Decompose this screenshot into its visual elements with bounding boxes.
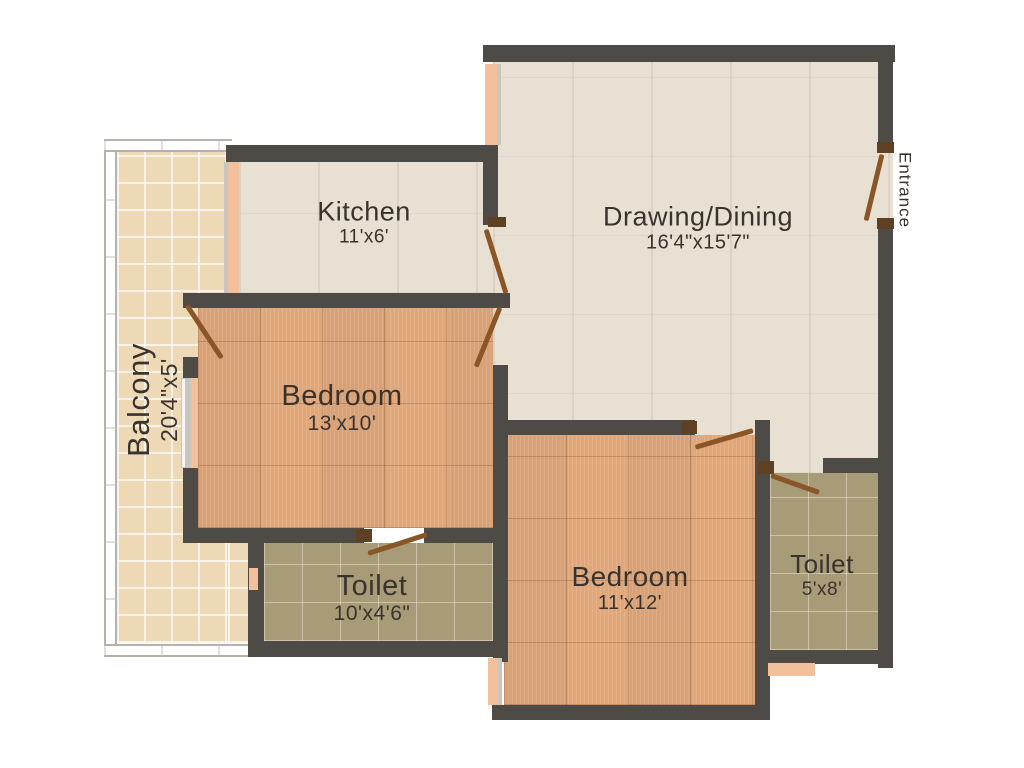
window-drawing-left-frame xyxy=(497,64,501,145)
kitchen-dimensions: 11'x6' xyxy=(317,226,411,247)
kitchen-label: Kitchen 11'x6' xyxy=(317,196,411,248)
wall-toilet2-top xyxy=(823,458,893,473)
balcony-railing-top xyxy=(104,139,232,152)
toilet-1-dimensions: 10'x4'6" xyxy=(334,602,411,626)
drawing-dining-label: Drawing/Dining 16'4"x15'7" xyxy=(603,202,793,255)
bedroom-1-dimensions: 13'x10' xyxy=(281,412,402,436)
drawing-dining-dimensions: 16'4"x15'7" xyxy=(603,232,793,254)
wall-bedroom2-bottom xyxy=(492,705,770,720)
window-bedroom1-balcony xyxy=(191,378,198,468)
wall-bedroom1-top xyxy=(183,293,510,308)
wall-bedroom1-left-stub xyxy=(183,357,198,378)
balcony-dimensions: 20'4"x5' xyxy=(156,343,182,457)
bedroom-1-name: Bedroom xyxy=(281,380,402,412)
entrance-text: Entrance xyxy=(895,152,914,228)
toilet-1-name: Toilet xyxy=(334,570,411,602)
jamb-toilet1-door xyxy=(356,529,372,542)
toilet-2-name: Toilet xyxy=(790,550,854,579)
drawing-dining-floor xyxy=(493,62,893,473)
wall-drawing-top xyxy=(483,45,895,62)
jamb-entrance-bottom xyxy=(877,218,894,229)
jamb-entrance-top xyxy=(877,142,894,153)
window-drawing-left xyxy=(485,64,497,145)
toilet-2-label: Toilet 5'x8' xyxy=(790,550,854,600)
jamb-bedroom2-door xyxy=(682,421,697,434)
bedroom-2-name: Bedroom xyxy=(571,561,688,592)
balcony-name: Balcony xyxy=(122,343,157,457)
window-kitchen-balcony xyxy=(228,162,239,293)
wall-entrance-lower xyxy=(878,222,893,668)
floor-plan: Kitchen 11'x6' Drawing/Dining 16'4"x15'7… xyxy=(0,0,1024,768)
balcony-floor-extension xyxy=(228,543,250,643)
window-toilet2-bottom xyxy=(768,663,815,676)
toilet-2-dimensions: 5'x8' xyxy=(790,579,854,600)
jamb-kitchen-door xyxy=(488,217,506,227)
wall-bedroom2-top xyxy=(493,420,695,435)
wall-toilet1-left xyxy=(248,543,264,656)
balcony-label: Balcony 20'4"x5' xyxy=(122,343,182,457)
window-bedroom2-left-frame xyxy=(498,658,502,705)
bedroom-1-label: Bedroom 13'x10' xyxy=(281,380,402,436)
entrance-label: Entrance xyxy=(895,152,914,228)
wall-entrance-upper xyxy=(878,45,893,152)
window-bedroom2-left xyxy=(488,658,498,705)
jamb-toilet2-door xyxy=(758,461,774,474)
wall-bedroom1-bottom-left xyxy=(183,528,364,543)
toilet-1-label: Toilet 10'x4'6" xyxy=(334,570,411,626)
wall-bedroom1-bottom-right xyxy=(424,528,508,543)
wall-kitchen-right xyxy=(483,162,498,225)
bedroom-2-dimensions: 11'x12' xyxy=(571,592,688,614)
wall-spine-center xyxy=(493,365,508,662)
wall-toilet1-bottom xyxy=(248,641,506,657)
wall-kitchen-top xyxy=(226,145,498,162)
balcony-railing-bottom xyxy=(104,644,250,657)
window-toilet1-balcony xyxy=(249,568,258,590)
wall-toilet2-bottom xyxy=(755,650,893,664)
balcony-railing-left xyxy=(104,139,117,657)
kitchen-name: Kitchen xyxy=(317,196,411,226)
drawing-dining-name: Drawing/Dining xyxy=(603,202,793,232)
bedroom-2-label: Bedroom 11'x12' xyxy=(571,561,688,615)
